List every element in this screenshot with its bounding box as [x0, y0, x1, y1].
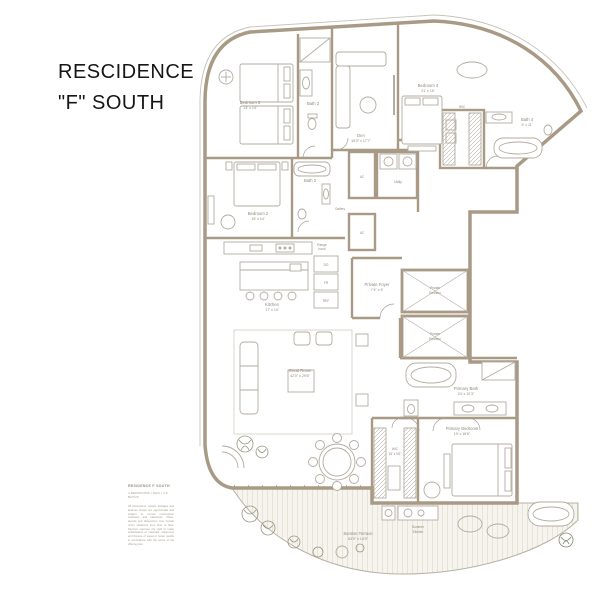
dining-table-icon [309, 434, 366, 491]
room-label-terrace: Sunrise Terrace [343, 531, 373, 536]
room-dims-terrace: 63'0" x 14'9" [348, 537, 368, 541]
legend-block: RESIDENCE F SOUTH 4 BEDROOMS | DEN | 4.5… [128, 484, 174, 547]
room-label-elevator1-l2: Elevator [429, 291, 442, 295]
room-label-summer-kitchen-l1: Summer [412, 525, 425, 529]
armchair-icon [424, 482, 440, 498]
kitchen-counter-icon [224, 242, 312, 254]
room-dims-foyer: 7'4" x 9' [371, 288, 384, 292]
room-label-elevator2-l1: Private [430, 332, 440, 336]
washer-dryer-icon [380, 154, 416, 169]
room-label-bath4: Bath 4 [521, 117, 534, 122]
bed-icon [226, 162, 288, 206]
kitchen-island-icon [240, 262, 308, 300]
legend-heading: RESIDENCE F SOUTH [128, 484, 174, 488]
sofa-icon [336, 52, 394, 128]
double-vanity-icon [454, 402, 506, 415]
room-label-ac1: AC [360, 175, 365, 179]
appliance-label-ref: REF [323, 299, 329, 303]
bed-icon [444, 444, 512, 496]
room-dims-bedroom3: 14' x 14' [243, 106, 256, 110]
room-dims-great-room: 42'0" x 29'6" [290, 374, 310, 378]
room-dims-primary-bedroom: 19' x 16'6" [454, 432, 471, 436]
wardrobe-icon [443, 113, 481, 165]
living-area-icons [234, 330, 368, 434]
wardrobe-icon [374, 428, 416, 498]
room-label-wic: WIC [392, 447, 399, 451]
toilet-icon [298, 209, 306, 219]
toilet-icon [544, 125, 552, 135]
floor-plan: Bedroom 3 14' x 14' Bath 3 Den 15'0" x 1… [0, 0, 600, 600]
room-label-foyer: Private Foyer [365, 282, 391, 287]
bathtub-icon [494, 138, 542, 158]
room-dims-bedroom2: 15' x 14' [251, 217, 264, 221]
private-elevators [402, 270, 468, 358]
sink-icon [322, 184, 330, 204]
room-label-bedroom4: Bedroom 4 [418, 83, 439, 88]
appliance-label-fr: FR [324, 281, 329, 285]
room-dims-wic: 15' x 9'6" [389, 452, 402, 456]
room-label-bedroom2: Bedroom 2 [248, 211, 269, 216]
toilet-icon [404, 400, 418, 416]
plant-icon [237, 436, 253, 452]
room-label-summer-kitchen-l2: Kitchen [413, 530, 424, 534]
ceiling-fan-icon [219, 70, 233, 84]
bench-icon [208, 196, 214, 224]
furniture [208, 38, 574, 558]
room-label-bedroom3: Bedroom 3 [240, 100, 261, 105]
terrace-deck [232, 488, 578, 574]
spa-tub-icon [528, 502, 574, 526]
room-label-elevator2-l2: Elevator [429, 337, 442, 341]
bathtub-icon [294, 162, 330, 176]
room-label-great-room: Great Room [289, 368, 312, 373]
sink-icon [486, 112, 512, 123]
table-icon [221, 215, 235, 229]
room-dims-den: 15'0" x 17'7" [351, 139, 371, 143]
room-label-utility: Utility [394, 180, 402, 184]
room-label-bath2: Bath 2 [304, 178, 317, 183]
toilet-icon [308, 114, 317, 130]
shower-icon [300, 38, 330, 62]
room-label-bath3: Bath 3 [307, 101, 320, 106]
room-dims-kitchen: 17' x 14' [265, 308, 278, 312]
room-label-den: Den [357, 133, 365, 138]
bathtub-icon [406, 363, 456, 387]
plant-icon [256, 446, 268, 458]
bed-icon [240, 64, 293, 102]
room-dims-primary-bath: 24' x 10'3" [458, 392, 475, 396]
room-dims-bedroom4: 21' x 15' [421, 89, 434, 93]
curved-bench-icon [222, 446, 244, 468]
bed-icon [240, 106, 293, 144]
plant-icon [559, 533, 573, 547]
room-label-primary-bedroom: Primary Bedroom [446, 426, 479, 431]
room-label-ac2: AC [360, 231, 365, 235]
chaise-icon [457, 62, 487, 78]
room-label-gallery: Gallery [335, 207, 346, 211]
room-label-elevator1-l1: Private [430, 286, 440, 290]
room-label-wic4: WIC [459, 105, 466, 109]
room-dims-bath4: 5' x 11' [522, 123, 533, 127]
legend-subheading: 4 BEDROOMS | DEN | 4.5 BATHS [128, 491, 174, 499]
legend-disclaimer: All dimensions, square footages and feat… [128, 505, 174, 547]
appliance-label-do: DO [324, 263, 329, 267]
shower-icon [482, 362, 515, 380]
room-label-primary-bath: Primary Bath [454, 386, 479, 391]
room-label-kitchen: Kitchen [265, 302, 280, 307]
sink-icon [300, 70, 312, 96]
room-label-range-hood-2: hood [318, 247, 325, 251]
grill-icon [382, 506, 438, 520]
